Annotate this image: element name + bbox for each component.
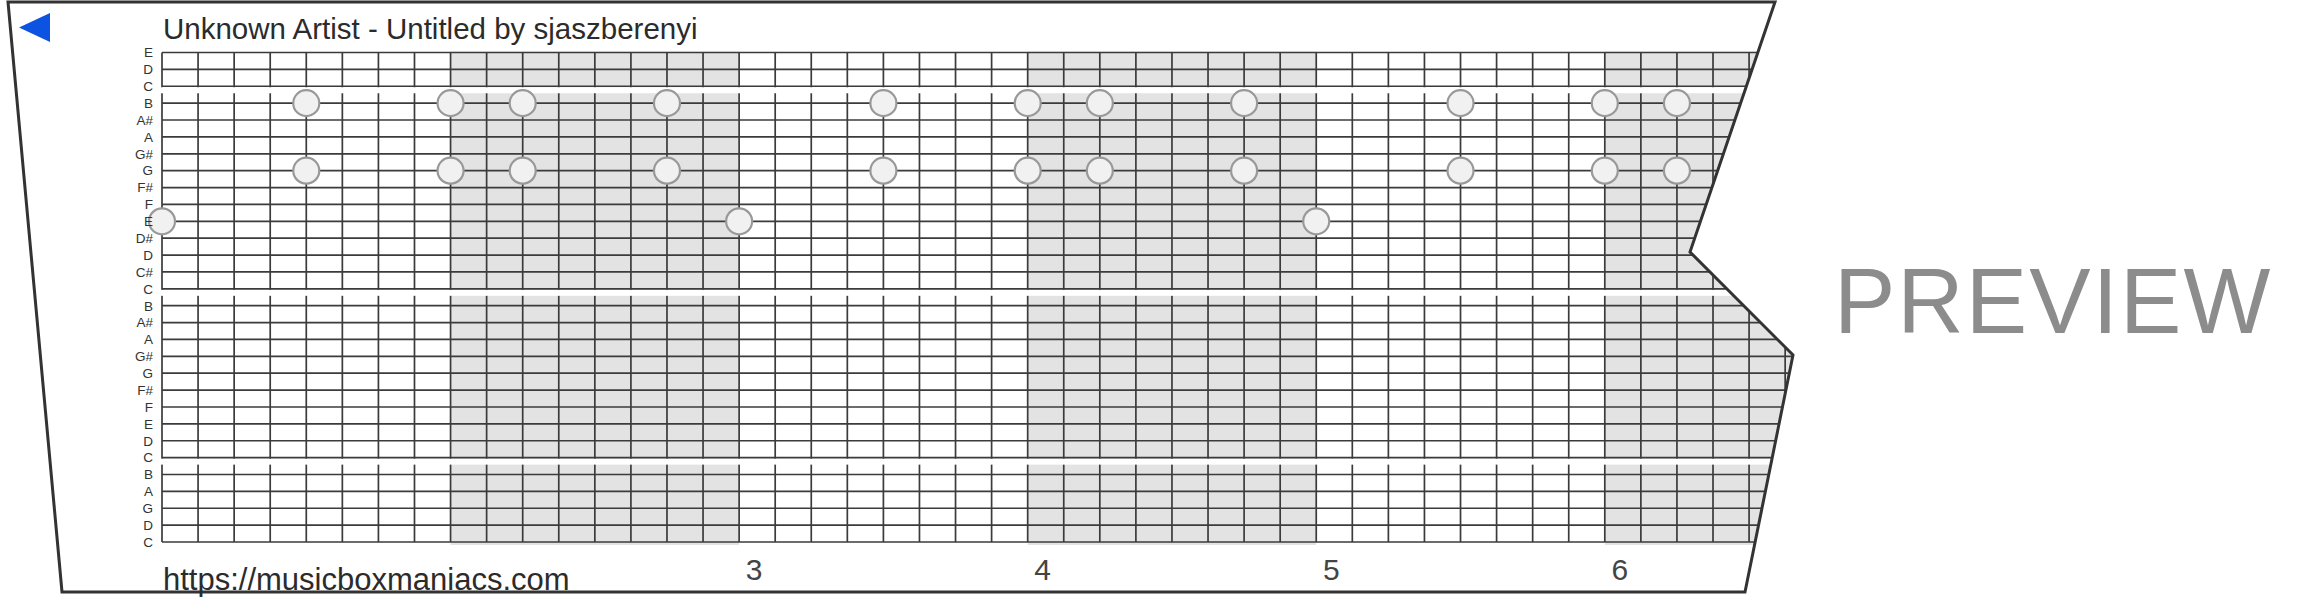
measure-number: 4 (1034, 553, 1051, 586)
note-label: D (143, 434, 153, 449)
note-hole (1087, 158, 1113, 184)
measure-number: 3 (746, 553, 763, 586)
note-label: D (143, 62, 153, 77)
note-label: G# (135, 349, 154, 364)
note-label: D (143, 248, 153, 263)
rewind-triangle-icon (14, 11, 54, 45)
note-label: G (142, 366, 153, 381)
note-hole (1015, 158, 1041, 184)
note-hole (438, 158, 464, 184)
note-label: E (144, 214, 153, 229)
note-hole (1592, 158, 1618, 184)
note-hole (1303, 208, 1329, 234)
note-hole (870, 90, 896, 116)
note-hole (1087, 90, 1113, 116)
note-hole (1231, 158, 1257, 184)
note-hole (870, 158, 896, 184)
note-label: B (144, 96, 153, 111)
preview-watermark: PREVIEW (1834, 251, 2272, 352)
note-label: A (144, 130, 153, 145)
note-label: C (143, 79, 153, 94)
note-hole (1448, 90, 1474, 116)
note-label: G (142, 501, 153, 516)
note-hole (1592, 90, 1618, 116)
note-hole (1664, 158, 1690, 184)
note-label: F (145, 400, 153, 415)
note-label: A# (136, 315, 153, 330)
note-label: E (144, 417, 153, 432)
note-hole (654, 90, 680, 116)
note-label: C (143, 450, 153, 465)
note-label: F# (137, 383, 153, 398)
note-label: E (144, 45, 153, 60)
rewind-icon[interactable] (14, 11, 54, 45)
site-url: https://musicboxmaniacs.com (163, 563, 570, 597)
note-hole (510, 90, 536, 116)
note-hole (654, 158, 680, 184)
note-label: D (143, 518, 153, 533)
note-hole (726, 208, 752, 234)
note-label: C# (136, 265, 154, 280)
note-hole (293, 158, 319, 184)
note-hole (1231, 90, 1257, 116)
note-hole (1448, 158, 1474, 184)
note-label: F (145, 197, 153, 212)
note-label: D# (136, 231, 154, 246)
note-label: A (144, 484, 153, 499)
note-label: F# (137, 180, 153, 195)
note-label: B (144, 467, 153, 482)
note-label: G (142, 163, 153, 178)
note-label: A# (136, 113, 153, 128)
song-title: Unknown Artist - Untitled by sjaszbereny… (163, 13, 698, 45)
note-hole (293, 90, 319, 116)
note-label: C (143, 535, 153, 550)
note-label: C (143, 282, 153, 297)
measure-number: 6 (1611, 553, 1628, 586)
music-strip-preview-page: EDCBA#AG#GF#FED#DC#CBA#AG#GF#FEDCBAGDC34… (0, 0, 2310, 597)
note-hole (510, 158, 536, 184)
note-hole (438, 90, 464, 116)
measure-number: 5 (1323, 553, 1340, 586)
note-label: G# (135, 147, 154, 162)
note-hole (1664, 90, 1690, 116)
note-hole (1015, 90, 1041, 116)
note-label: B (144, 299, 153, 314)
note-label: A (144, 332, 153, 347)
